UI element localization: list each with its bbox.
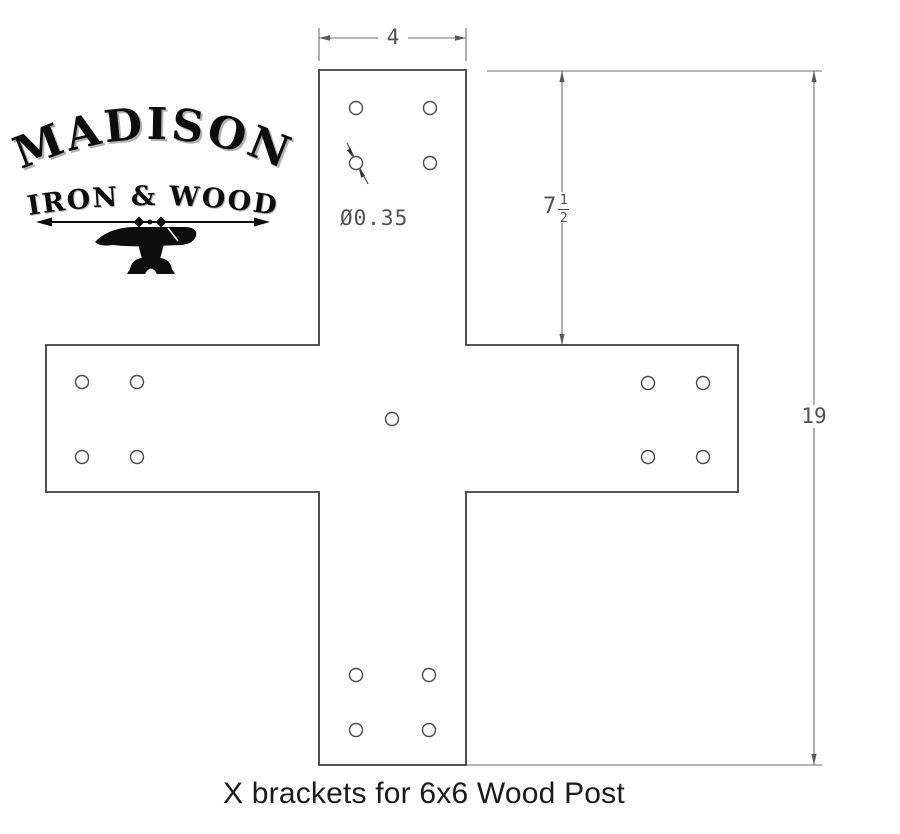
arrowhead-icon: [455, 35, 466, 41]
hole-diameter-label: Ø0.35: [340, 207, 408, 230]
arrowhead-icon: [811, 71, 816, 82]
bolt-holes: [76, 102, 710, 737]
fraction-numerator: 1: [560, 194, 568, 207]
bolt-hole: [131, 376, 144, 389]
bolt-hole: [697, 451, 710, 464]
arrowhead-icon: [811, 754, 816, 765]
bolt-hole: [697, 377, 710, 390]
bolt-hole: [76, 376, 89, 389]
bolt-hole: [386, 413, 399, 426]
bolt-hole: [424, 157, 437, 170]
bracket-drawing: [0, 0, 900, 834]
dim-total-height-label: 19: [797, 405, 831, 428]
dim-upper-height-label: 7 1 2: [540, 192, 572, 223]
bolt-hole: [350, 669, 363, 682]
bolt-hole: [131, 451, 144, 464]
bolt-hole: [350, 102, 363, 115]
dimension-lines: [319, 28, 822, 765]
bolt-hole: [423, 724, 436, 737]
bolt-hole: [423, 669, 436, 682]
dim-upper-whole: 7: [543, 195, 556, 219]
arrowhead-icon: [559, 71, 564, 82]
fraction-denominator: 2: [560, 212, 568, 225]
bolt-hole: [350, 724, 363, 737]
bolt-hole: [350, 157, 363, 170]
fraction-bar: [558, 209, 569, 211]
caption: X brackets for 6x6 Wood Post: [223, 777, 625, 811]
dim-top-width-label: 4: [378, 26, 408, 49]
arrowhead-icon: [559, 334, 564, 345]
bolt-hole: [76, 451, 89, 464]
fraction: 1 2: [558, 194, 569, 225]
bolt-hole: [424, 102, 437, 115]
drawing-canvas: MADISON IRON & WOOD: [0, 0, 900, 834]
bolt-hole: [642, 377, 655, 390]
arrowhead-icon: [319, 35, 330, 41]
bolt-hole: [642, 451, 655, 464]
